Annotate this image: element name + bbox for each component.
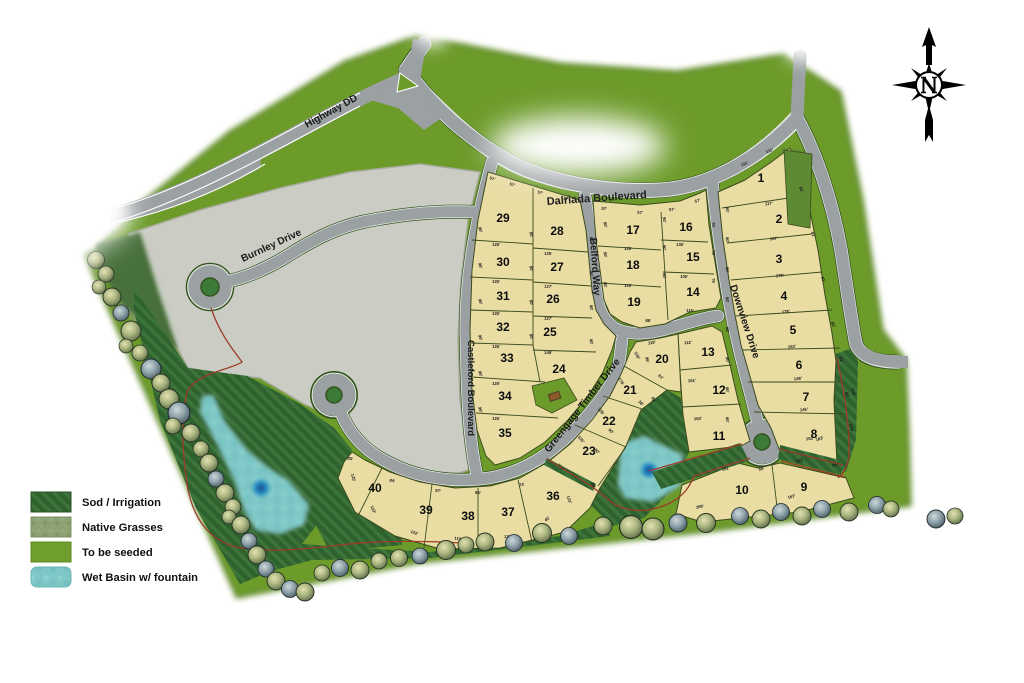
svg-text:125': 125' — [492, 344, 500, 349]
svg-text:Wet Basin w/ fountain: Wet Basin w/ fountain — [82, 572, 198, 584]
svg-text:148': 148' — [544, 350, 552, 356]
svg-text:80': 80' — [725, 207, 731, 213]
svg-text:88': 88' — [645, 318, 651, 324]
svg-text:20: 20 — [655, 352, 669, 366]
svg-text:125': 125' — [492, 279, 500, 284]
svg-text:153': 153' — [806, 436, 814, 442]
svg-text:31: 31 — [496, 289, 510, 303]
svg-text:75': 75' — [711, 278, 717, 284]
svg-text:178': 178' — [782, 309, 790, 315]
svg-text:80': 80' — [603, 222, 609, 228]
svg-text:29: 29 — [496, 211, 510, 225]
svg-text:125': 125' — [492, 311, 500, 316]
svg-text:84': 84' — [389, 478, 395, 484]
svg-text:125': 125' — [544, 251, 552, 257]
svg-text:105': 105' — [680, 274, 688, 279]
svg-text:135': 135' — [676, 242, 684, 247]
svg-text:90': 90' — [662, 245, 668, 251]
svg-text:Sod / Irrigation: Sod / Irrigation — [82, 497, 161, 509]
svg-text:119': 119' — [648, 339, 656, 345]
svg-text:24: 24 — [552, 362, 566, 376]
svg-text:4: 4 — [781, 289, 788, 303]
svg-text:17: 17 — [626, 223, 640, 237]
svg-text:127': 127' — [544, 316, 552, 322]
svg-text:37: 37 — [501, 505, 515, 519]
svg-text:25: 25 — [543, 325, 557, 339]
svg-text:80': 80' — [603, 282, 609, 288]
svg-text:80': 80' — [725, 387, 731, 393]
svg-text:Native Grasses: Native Grasses — [82, 522, 163, 534]
svg-text:9: 9 — [801, 480, 808, 494]
svg-text:75': 75' — [711, 222, 717, 228]
svg-text:To be seeded: To be seeded — [82, 547, 153, 559]
svg-text:36: 36 — [546, 489, 560, 503]
svg-text:Castleford Boulevard: Castleford Boulevard — [465, 340, 476, 436]
svg-text:15: 15 — [686, 250, 700, 264]
svg-text:125': 125' — [492, 242, 500, 247]
svg-text:57': 57' — [601, 206, 607, 212]
svg-text:21: 21 — [623, 383, 637, 397]
svg-text:32: 32 — [496, 320, 510, 334]
svg-text:80': 80' — [589, 305, 595, 311]
svg-text:117': 117' — [765, 201, 773, 207]
svg-text:80': 80' — [725, 237, 731, 243]
svg-text:57': 57' — [669, 207, 675, 213]
svg-text:75': 75' — [711, 250, 717, 256]
svg-text:38: 38 — [461, 509, 475, 523]
svg-text:115': 115' — [686, 308, 694, 313]
svg-text:87': 87' — [435, 488, 441, 494]
svg-text:7: 7 — [803, 390, 810, 404]
svg-text:28: 28 — [550, 224, 564, 238]
svg-text:74': 74' — [519, 482, 525, 488]
svg-text:14: 14 — [686, 285, 700, 299]
svg-text:151': 151' — [688, 378, 696, 384]
svg-text:11: 11 — [713, 429, 726, 443]
svg-text:6: 6 — [796, 358, 803, 372]
svg-text:125': 125' — [492, 381, 500, 386]
svg-text:19: 19 — [627, 295, 641, 309]
svg-text:80': 80' — [725, 417, 731, 423]
svg-text:12: 12 — [712, 383, 726, 397]
svg-text:39: 39 — [419, 503, 433, 517]
svg-text:90': 90' — [662, 217, 668, 223]
svg-text:80': 80' — [725, 267, 731, 273]
svg-text:1: 1 — [758, 171, 765, 185]
svg-text:26: 26 — [546, 292, 560, 306]
svg-text:57': 57' — [637, 210, 643, 215]
svg-text:112': 112' — [684, 340, 692, 346]
svg-text:10: 10 — [735, 483, 749, 497]
svg-text:178': 178' — [776, 273, 784, 279]
svg-text:80': 80' — [725, 357, 731, 363]
svg-text:40: 40 — [368, 481, 382, 495]
svg-text:33: 33 — [500, 351, 514, 365]
svg-text:5: 5 — [790, 323, 797, 337]
svg-text:80': 80' — [603, 252, 609, 258]
svg-text:80': 80' — [725, 327, 731, 333]
svg-text:153': 153' — [788, 344, 796, 350]
svg-text:167': 167' — [770, 236, 778, 242]
svg-text:27: 27 — [550, 260, 564, 274]
svg-text:13: 13 — [701, 345, 715, 359]
svg-text:146': 146' — [800, 407, 808, 413]
svg-text:35: 35 — [498, 426, 512, 440]
svg-text:16: 16 — [679, 220, 693, 234]
svg-text:80': 80' — [589, 339, 595, 345]
svg-text:83': 83' — [347, 456, 353, 462]
svg-text:153': 153' — [694, 416, 702, 422]
svg-text:127': 127' — [544, 284, 552, 290]
svg-text:22: 22 — [602, 414, 616, 428]
svg-text:2: 2 — [776, 212, 783, 226]
svg-text:125': 125' — [624, 246, 632, 252]
svg-text:34: 34 — [498, 389, 512, 403]
svg-text:148': 148' — [794, 376, 802, 382]
svg-text:30: 30 — [496, 255, 510, 269]
svg-text:80': 80' — [725, 297, 731, 303]
svg-text:3: 3 — [776, 252, 783, 266]
svg-text:90': 90' — [662, 273, 668, 279]
svg-text:125': 125' — [492, 416, 500, 421]
svg-text:125': 125' — [624, 283, 632, 289]
svg-text:18: 18 — [626, 258, 640, 272]
svg-text:85': 85' — [475, 490, 481, 495]
